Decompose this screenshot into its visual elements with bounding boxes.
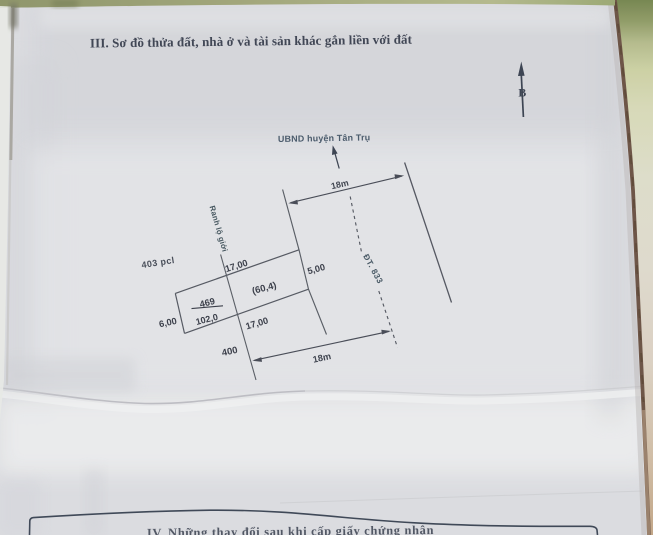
svg-text:B: B (518, 86, 526, 100)
svg-text:UBND huyện Tân Trụ: UBND huyện Tân Trụ (278, 132, 371, 144)
svg-text:IV. Những thay đổi sau khi cấp: IV. Những thay đổi sau khi cấp giấy chứn… (147, 523, 434, 535)
